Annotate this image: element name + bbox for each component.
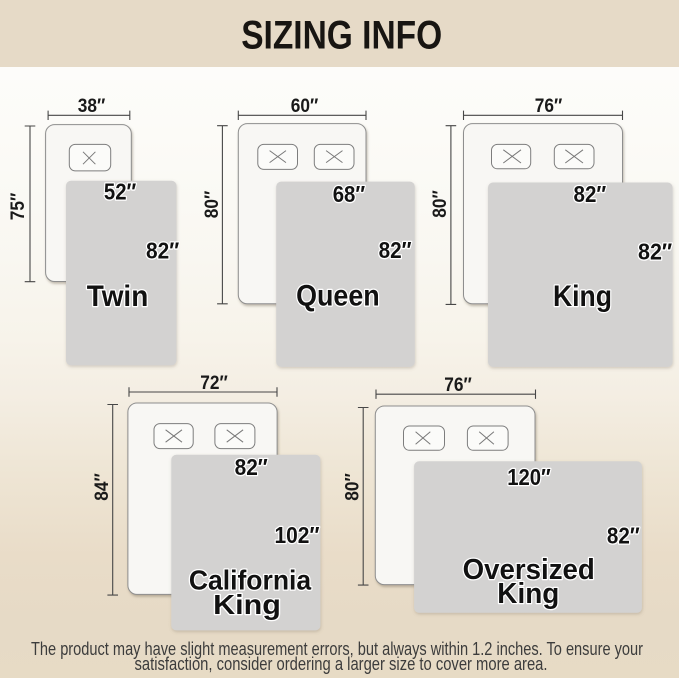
svg-text:120″: 120″ [507,464,551,490]
svg-text:satisfaction, consider orderin: satisfaction, consider ordering a larger… [135,654,548,674]
svg-text:82″: 82″ [379,237,412,263]
svg-text:82″: 82″ [638,238,672,264]
svg-text:Queen: Queen [296,279,380,312]
svg-text:38″: 38″ [78,95,106,117]
svg-text:60″: 60″ [291,95,319,117]
svg-text:SIZING INFO: SIZING INFO [241,14,442,58]
svg-text:76″: 76″ [444,374,472,396]
svg-text:68″: 68″ [333,181,365,207]
svg-text:82″: 82″ [607,522,640,548]
svg-text:80″: 80″ [201,191,223,219]
svg-text:Twin: Twin [87,280,149,313]
svg-text:52″: 52″ [104,178,136,204]
svg-text:75″: 75″ [7,193,29,221]
svg-text:84″: 84″ [91,473,113,501]
svg-text:82″: 82″ [574,181,607,207]
svg-text:82″: 82″ [235,454,268,480]
svg-text:72″: 72″ [200,372,228,394]
svg-text:82″: 82″ [146,237,179,263]
svg-text:102″: 102″ [275,522,320,548]
svg-text:80″: 80″ [341,473,363,501]
svg-text:King: King [497,578,559,610]
svg-text:King: King [213,589,281,620]
svg-text:King: King [553,280,612,313]
svg-text:80″: 80″ [429,190,451,218]
svg-text:76″: 76″ [535,95,563,117]
